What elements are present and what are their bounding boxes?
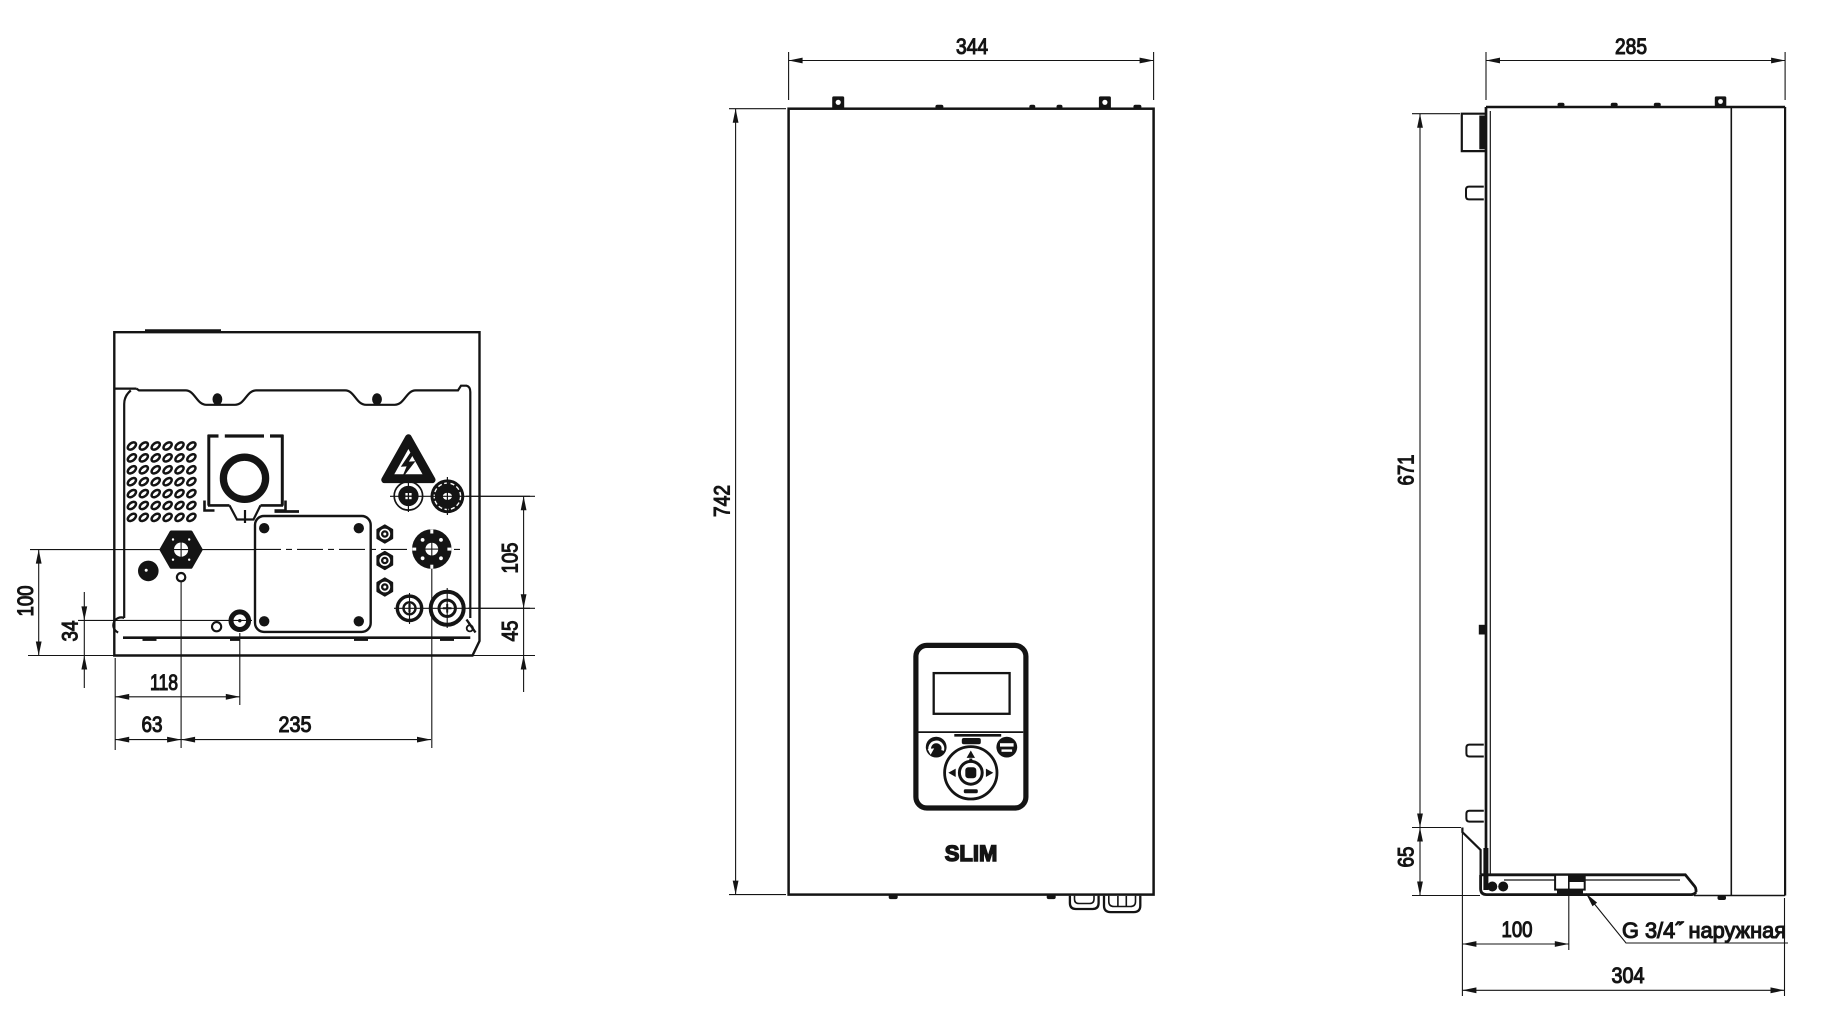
svg-text:45: 45: [498, 621, 523, 642]
svg-text:G 3/4˝ наружная: G 3/4˝ наружная: [1622, 918, 1786, 943]
svg-text:742: 742: [710, 485, 735, 517]
svg-text:235: 235: [279, 712, 312, 737]
svg-text:34: 34: [58, 621, 83, 642]
svg-text:304: 304: [1612, 963, 1645, 988]
svg-text:671: 671: [1394, 455, 1419, 486]
svg-text:100: 100: [1502, 917, 1533, 942]
svg-text:118: 118: [150, 670, 178, 695]
svg-text:63: 63: [142, 712, 163, 737]
svg-text:285: 285: [1615, 34, 1647, 59]
svg-text:65: 65: [1394, 847, 1419, 868]
svg-text:100: 100: [13, 586, 38, 617]
svg-text:SLIM: SLIM: [945, 841, 998, 866]
svg-text:105: 105: [498, 543, 523, 574]
svg-text:344: 344: [956, 34, 988, 59]
